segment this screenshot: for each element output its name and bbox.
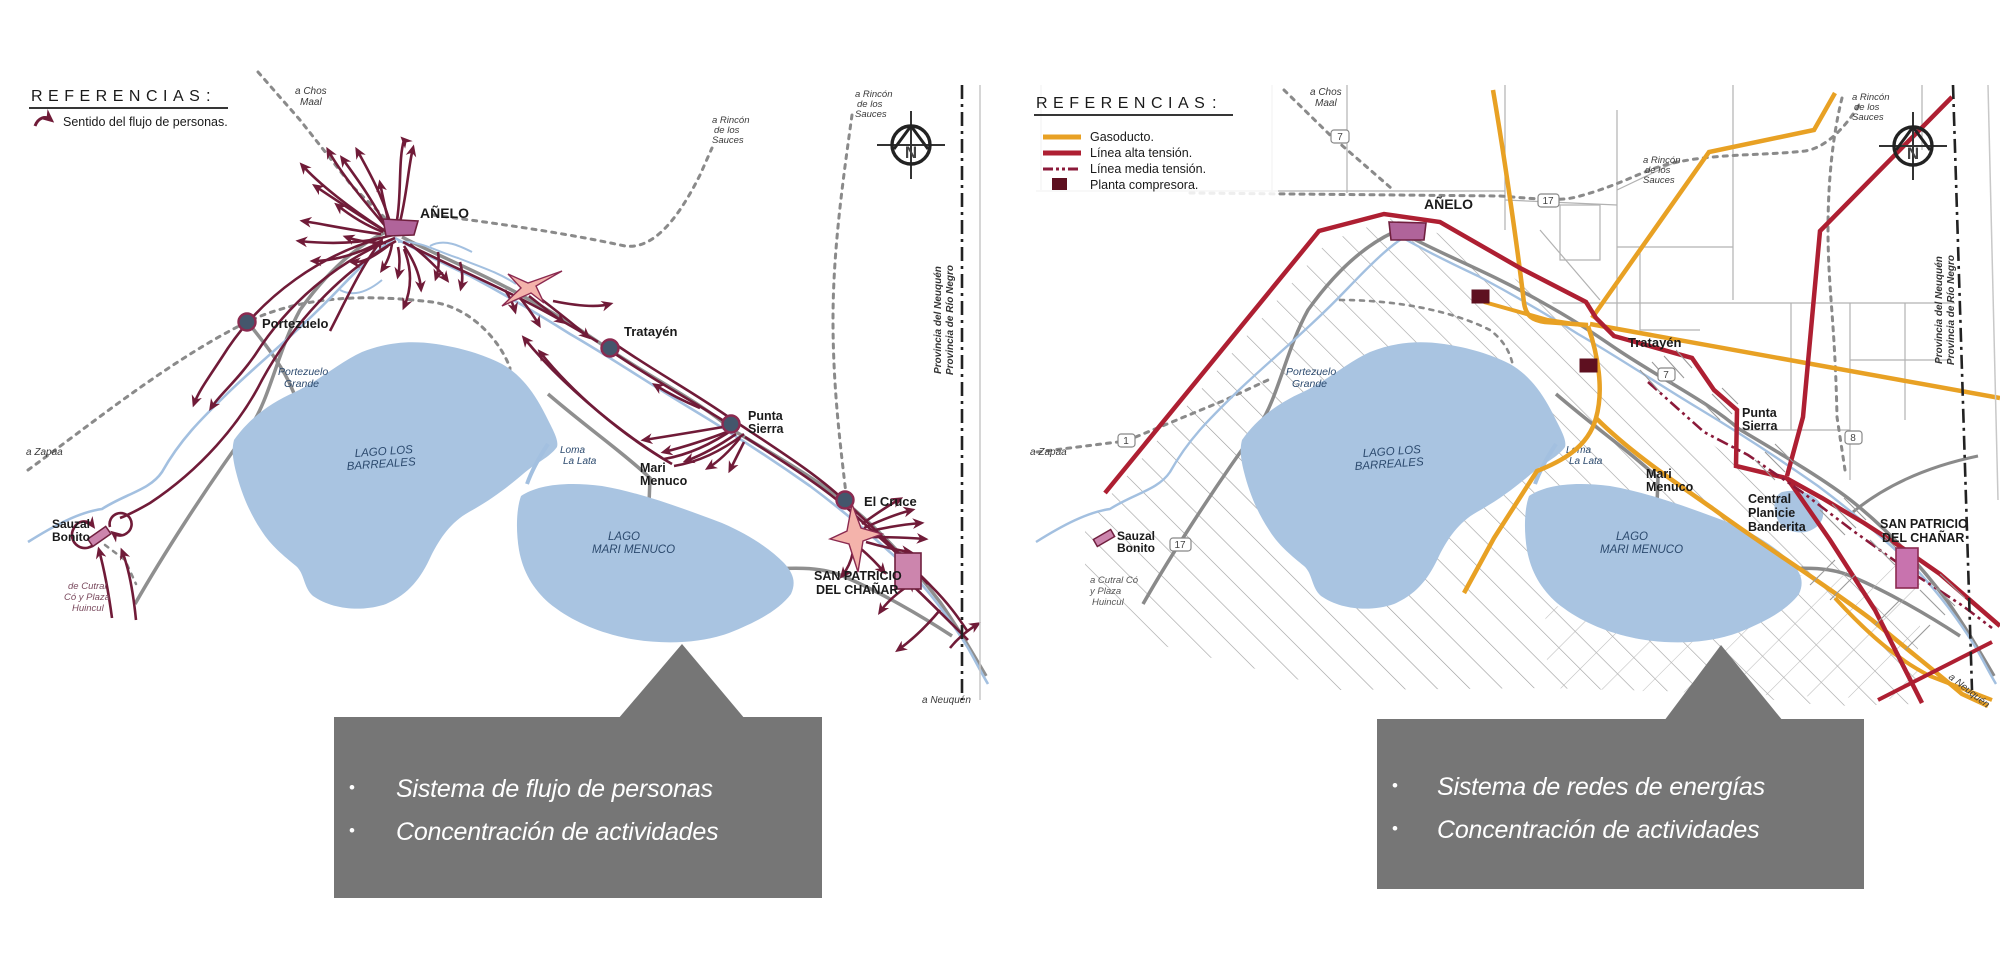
- svg-text:a Zapaa: a Zapaa: [26, 447, 63, 458]
- svg-text:Sauces: Sauces: [712, 135, 744, 146]
- svg-text:7: 7: [1663, 370, 1669, 381]
- svg-text:N: N: [905, 143, 917, 162]
- svg-text:Provincia del Neuquén: Provincia del Neuquén: [933, 266, 944, 374]
- svg-text:Portezuelo: Portezuelo: [1286, 366, 1336, 378]
- svg-text:Grande: Grande: [1292, 378, 1327, 390]
- svg-text:Sistema de redes de energías: Sistema de redes de energías: [1437, 773, 1765, 801]
- svg-text:Gasoducto.: Gasoducto.: [1090, 130, 1154, 144]
- svg-text:7: 7: [1337, 132, 1343, 143]
- svg-text:Planta compresora.: Planta compresora.: [1090, 178, 1198, 192]
- svg-text:Tratayén: Tratayén: [624, 324, 678, 339]
- svg-text:•: •: [349, 821, 355, 840]
- svg-text:AÑELO: AÑELO: [1424, 195, 1473, 212]
- svg-text:Tratayén: Tratayén: [1628, 335, 1682, 350]
- svg-text:Punta: Punta: [1742, 406, 1778, 420]
- svg-text:Huincul: Huincul: [1092, 597, 1125, 608]
- svg-text:Sierra: Sierra: [1742, 419, 1778, 433]
- svg-text:La Lata: La Lata: [1569, 456, 1603, 467]
- svg-text:REFERENCIAS: REFERENCIAS: [1036, 95, 1210, 112]
- svg-text:•: •: [1392, 776, 1398, 795]
- svg-text:MARI MENUCO: MARI MENUCO: [592, 544, 675, 556]
- svg-text:1: 1: [1123, 436, 1129, 447]
- svg-text:Provincia de Río Negro: Provincia de Río Negro: [945, 265, 956, 375]
- svg-text:Huincul: Huincul: [72, 603, 105, 614]
- svg-text:Bonito: Bonito: [52, 530, 90, 544]
- svg-text:DEL CHAÑAR: DEL CHAÑAR: [1882, 530, 1964, 545]
- svg-text:MARI MENUCO: MARI MENUCO: [1600, 544, 1683, 556]
- svg-text:Sistema de flujo de personas: Sistema de flujo de personas: [396, 775, 713, 803]
- svg-text::: :: [206, 87, 211, 105]
- svg-text:Concentración de actividades: Concentración de actividades: [1437, 816, 1759, 844]
- svg-text:Mari: Mari: [1646, 467, 1672, 481]
- svg-text:a Zapaa: a Zapaa: [1030, 447, 1067, 458]
- svg-text:REFERENCIAS: REFERENCIAS: [31, 88, 205, 105]
- svg-text:Central: Central: [1748, 492, 1791, 506]
- svg-text:Loma: Loma: [560, 445, 585, 456]
- svg-text:Línea alta tensión.: Línea alta tensión.: [1090, 146, 1192, 160]
- svg-text:Punta: Punta: [748, 409, 784, 423]
- svg-text:Sauces: Sauces: [1852, 112, 1884, 123]
- svg-text:Portezuelo: Portezuelo: [262, 316, 329, 331]
- svg-text:Planicie: Planicie: [1748, 506, 1795, 520]
- svg-text:•: •: [1392, 819, 1398, 838]
- svg-text:17: 17: [1174, 540, 1186, 551]
- svg-text:•: •: [349, 778, 355, 797]
- svg-text:Provincia de Río Negro: Provincia de Río Negro: [1946, 255, 1957, 365]
- svg-text:Sauzal: Sauzal: [52, 517, 90, 531]
- svg-text:a Chos: a Chos: [1310, 87, 1342, 98]
- svg-text:a Chos: a Chos: [295, 86, 327, 97]
- svg-text:8: 8: [1850, 433, 1856, 444]
- svg-text:LAGO: LAGO: [608, 531, 640, 543]
- svg-text:La Lata: La Lata: [563, 456, 597, 467]
- svg-text:Có y Plaza: Có y Plaza: [64, 592, 110, 603]
- svg-text:Portezuelo: Portezuelo: [278, 366, 328, 378]
- svg-text:LAGO: LAGO: [1616, 531, 1648, 543]
- svg-text:Menuco: Menuco: [640, 474, 688, 488]
- svg-text:Mari: Mari: [640, 461, 666, 475]
- svg-text:a Cutral Có: a Cutral Có: [1090, 575, 1139, 586]
- svg-text:Concentración de actividades: Concentración de actividades: [396, 818, 718, 846]
- svg-text:SAN PATRICIO: SAN PATRICIO: [1880, 517, 1968, 531]
- svg-text:17: 17: [1542, 196, 1554, 207]
- svg-text:Menuco: Menuco: [1646, 480, 1694, 494]
- svg-text:Provincia del Neuquén: Provincia del Neuquén: [1934, 256, 1945, 364]
- svg-text:AÑELO: AÑELO: [420, 204, 469, 221]
- svg-text:N: N: [1907, 144, 1919, 163]
- svg-text:Maal: Maal: [1315, 98, 1337, 109]
- svg-text::: :: [1212, 94, 1217, 112]
- svg-text:Banderita: Banderita: [1748, 520, 1807, 534]
- svg-text:Sierra: Sierra: [748, 422, 784, 436]
- svg-text:El Cruce: El Cruce: [864, 494, 917, 509]
- svg-text:a Neuquén: a Neuquén: [922, 695, 971, 706]
- svg-text:Sauces: Sauces: [1643, 175, 1675, 186]
- svg-text:Línea media tensión.: Línea media tensión.: [1090, 162, 1206, 176]
- svg-text:Sentido del flujo de personas.: Sentido del flujo de personas.: [63, 115, 228, 129]
- svg-text:y Plaza: y Plaza: [1089, 586, 1121, 597]
- svg-text:DEL CHAÑAR: DEL CHAÑAR: [816, 582, 898, 597]
- svg-text:de Cutral: de Cutral: [68, 581, 107, 592]
- svg-text:Maal: Maal: [300, 97, 322, 108]
- svg-text:SAN PATRICIO: SAN PATRICIO: [814, 569, 902, 583]
- svg-text:Bonito: Bonito: [1117, 541, 1155, 555]
- svg-text:Sauces: Sauces: [855, 109, 887, 120]
- svg-text:Grande: Grande: [284, 378, 319, 390]
